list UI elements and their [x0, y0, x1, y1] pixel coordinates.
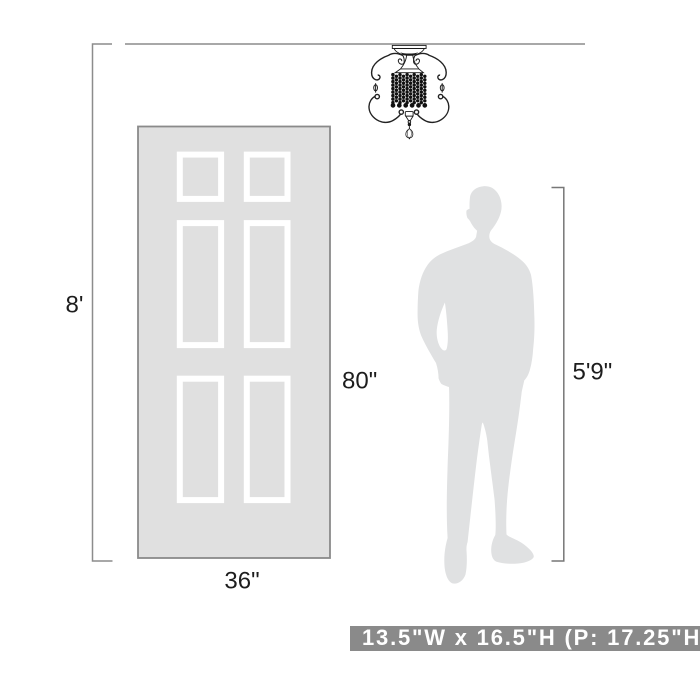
svg-text:80": 80" [342, 368, 377, 395]
svg-text:5'9": 5'9" [573, 359, 613, 386]
svg-text:8': 8' [66, 292, 84, 319]
svg-text:36": 36" [224, 568, 259, 595]
svg-text:13.5"W x 16.5"H (P: 17.25"H): 13.5"W x 16.5"H (P: 17.25"H) [362, 625, 700, 650]
